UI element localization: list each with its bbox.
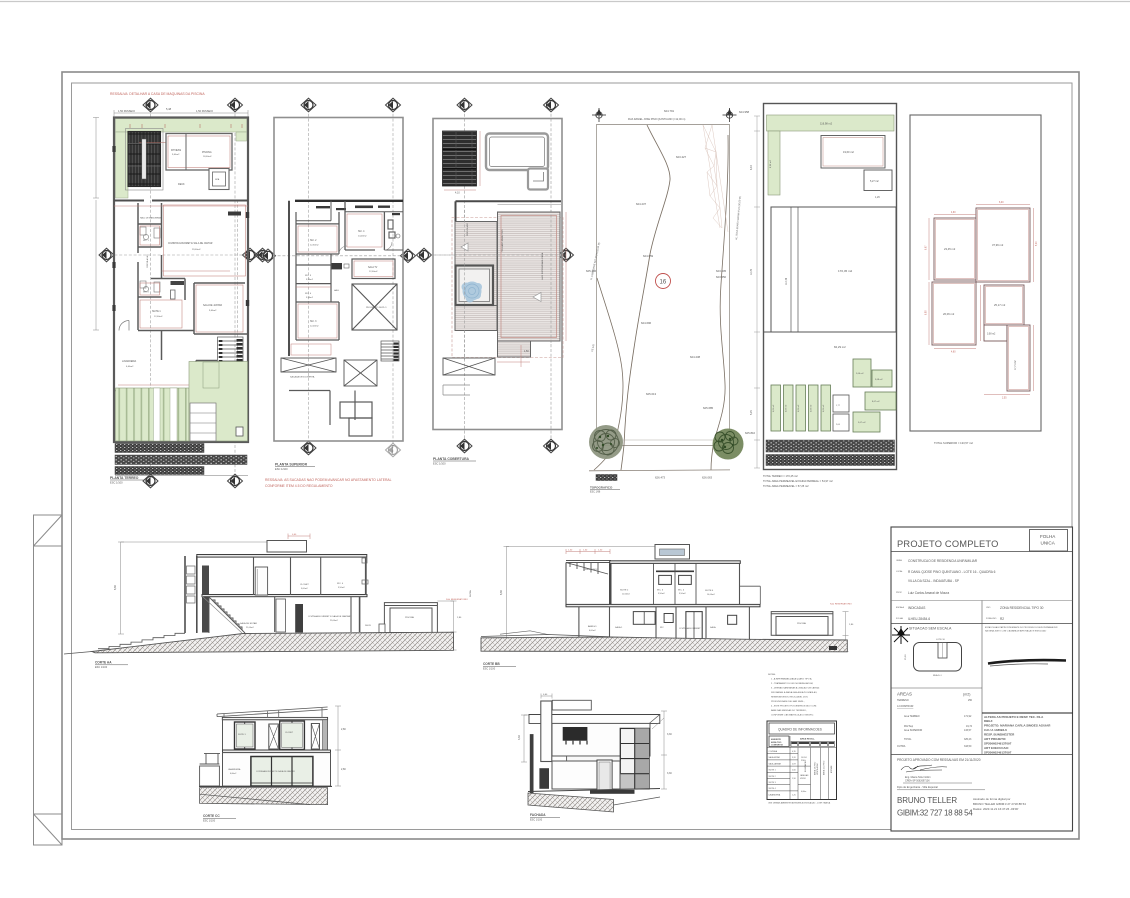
svg-text:CONFORME ITEM 4.5 DO REGULAMEN: CONFORME ITEM 4.5 DO REGULAMENTO [265,484,333,488]
svg-text:RESSALVA: DETALHAR A CASA DE M: RESSALVA: DETALHAR A CASA DE MAQUINAS DA… [110,92,205,96]
svg-text:CIRCULACAO: CIRCULACAO [146,254,149,268]
svg-text:COZINHA/GOURMET E SALA DE JANT: COZINHA/GOURMET E SALA DE JANTAR [308,615,351,618]
svg-text:6,00m2: 6,00m2 [230,773,236,775]
svg-text:625.013: 625.013 [646,392,657,396]
svg-text:4,10: 4,10 [455,192,460,195]
svg-text:COZINHA/GOURMET: COZINHA/GOURMET [679,627,701,630]
svg-text:5,25: 5,25 [750,410,753,415]
svg-text:TOTAL: TOTAL [904,738,912,741]
svg-text:3,50m2: 3,50m2 [338,587,346,589]
svg-text:PROJETO COMPLETO: PROJETO COMPLETO [897,539,999,549]
svg-text:6,40: 6,40 [750,165,753,170]
svg-text:ESC 1/100: ESC 1/100 [483,668,496,671]
svg-text:PISCINA: PISCINA [202,151,212,154]
svg-text:624.238: 624.238 [690,355,701,359]
svg-text:9,07 m2: 9,07 m2 [858,422,866,424]
svg-text:12,70: 12,70 [750,268,753,275]
svg-text:12,00m2: 12,00m2 [154,316,163,318]
svg-text:CORTE AA: CORTE AA [95,661,112,665]
svg-text:ESC 1/100: ESC 1/100 [530,819,543,822]
svg-text:ILHEU-28454-6: ILHEU-28454-6 [908,617,930,621]
svg-text:2 - TRATAMENTO E UM CHONERA VA: 2 - TRATAMENTO E UM CHONERA VACUM; [771,682,813,685]
svg-text:2,80: 2,80 [341,768,346,771]
svg-text:USO: USO [986,607,991,609]
svg-text:ESTA FOLHA E PARTE INTEGRANTE: ESTA FOLHA E PARTE INTEGRANTE DO PROCESS… [985,626,1058,629]
svg-text:4,69 m2: 4,69 m2 [798,404,800,412]
svg-text:SALA DE JANTAR: SALA DE JANTAR [203,304,222,307]
svg-text:1 - A IMPERMEABILIZADA QUANT.: 1 - A IMPERMEABILIZADA QUANT. TIPO A; [771,678,812,681]
svg-text:8,00: 8,00 [1036,241,1038,246]
svg-text:1/6 DO: 1/6 DO [801,757,808,759]
svg-text:37,96 m2: 37,96 m2 [992,243,1004,247]
svg-text:JANELAS: JANELAS [800,774,809,777]
svg-text:6,60: 6,60 [499,589,503,595]
svg-text:3,50m2: 3,50m2 [679,593,687,595]
svg-text:623.605: 623.605 [716,269,727,273]
svg-text:SP20660249137097: SP20660249137097 [984,751,1012,755]
svg-text:RESP. BUNDHESTER: RESP. BUNDHESTER [984,733,1015,737]
svg-text:INDICADAS: INDICADAS [908,606,925,610]
svg-text:OBS: DEMAIS AMBIENTES ATENDEM: OBS: DEMAIS AMBIENTES ATENDEM A LEGISLAC… [768,802,831,805]
svg-text:SALA 1: SALA 1 [615,626,623,629]
svg-text:12,00m2: 12,00m2 [369,271,378,273]
svg-text:ALTERA AS PROJETO E RESP. TEC.: ALTERA AS PROJETO E RESP. TEC. FILA [984,715,1044,719]
svg-text:3,50m2: 3,50m2 [658,593,666,595]
svg-text:625.685: 625.685 [703,406,714,410]
svg-text:GIBIM:32 727 18 88 54: GIBIM:32 727 18 88 54 [897,809,973,818]
svg-text:ZONA USO: ZONA USO [986,617,997,620]
svg-text:ART EXECUCAO:: ART EXECUCAO: [984,746,1009,750]
svg-text:2,60: 2,60 [792,770,796,772]
svg-text:Area TERREO: Area TERREO [904,715,920,718]
svg-text:19,74: 19,74 [966,725,973,728]
svg-text:FOLHA: FOLHA [896,617,903,620]
svg-text:12,00m2: 12,00m2 [310,326,319,328]
svg-text:ESC 1/100: ESC 1/100 [95,666,108,669]
svg-text:R DANIL QJOSE PINO QUINTUANO: R DANIL QJOSE PINO QUINTUANO - LOTE 16 -… [908,570,996,574]
svg-text:18,00m2: 18,00m2 [203,156,212,158]
svg-text:CORTE BB: CORTE BB [483,662,500,666]
svg-text:ESC 1/100: ESC 1/100 [433,462,446,466]
svg-text:25,00: 25,00 [905,654,907,660]
svg-text:6,00m2: 6,00m2 [126,366,134,368]
svg-text:ESC 1/100: ESC 1/100 [203,820,216,823]
svg-text:0,60m: 0,60m [801,791,807,793]
svg-text:SP20660249137097: SP20660249137097 [984,742,1012,746]
svg-text:WC. 3: WC. 3 [657,590,664,592]
svg-text:171,92: 171,92 [964,715,972,718]
svg-text:5,48: 5,48 [166,107,172,111]
svg-text:CLOSET: CLOSET [285,732,294,734]
svg-text:4,60: 4,60 [951,352,956,354]
svg-text:WC. 4: WC. 4 [305,293,312,295]
svg-text:N.A. RESERVATORIO: N.A. RESERVATORIO [830,603,852,606]
svg-text:1,50 PASSEIO: 1,50 PASSEIO [118,109,135,113]
svg-text:SALA JANTAR: SALA JANTAR [769,762,782,765]
svg-text:FITNESS: FITNESS [171,149,182,152]
svg-text:Area SUPERIOR: Area SUPERIOR [904,729,922,732]
svg-text:12,50m2: 12,50m2 [310,245,319,247]
svg-text:R2: R2 [1000,617,1004,621]
svg-text:ILUMINACAO: ILUMINACAO [804,760,807,772]
svg-text:SITUACAO SEM ESCALA: SITUACAO SEM ESCALA [909,627,952,631]
svg-text:LAVANDERIA: LAVANDERIA [122,360,137,363]
svg-text:COZINHA/GOURMET E SALA DE JANT: COZINHA/GOURMET E SALA DE JANTAR [168,242,213,245]
svg-text:6,00: 6,00 [999,202,1004,204]
svg-text:29,00m2: 29,00m2 [192,249,201,251]
svg-text:WC. 1: WC. 1 [143,240,150,242]
svg-text:SALA DE ESTAR: SALA DE ESTAR [240,622,257,625]
svg-text:COMPARTIM.: COMPARTIM. [771,744,784,747]
svg-text:TOTAL TERREO = 170,45 m2: TOTAL TERREO = 170,45 m2 [763,474,798,478]
svg-text:CONSTRUCAO DE RESIDENCIA UNIFA: CONSTRUCAO DE RESIDENCIA UNIFAMILIAR [908,559,978,563]
svg-text:DECK: DECK [365,625,372,627]
svg-text:14,00m2: 14,00m2 [358,236,367,238]
svg-text:LOTE 16: LOTE 16 [936,639,946,641]
svg-text:4,69 m2: 4,69 m2 [773,404,775,412]
svg-text:LAVANDERIA: LAVANDERIA [228,768,241,771]
svg-text:ESC 1/100: ESC 1/100 [110,481,123,485]
svg-text:WC. 2: WC. 2 [143,292,150,294]
svg-text:25,17 m2: 25,17 m2 [994,303,1006,307]
svg-text:250: 250 [968,699,973,702]
svg-text:BRUNO TELLER: BRUNO TELLER [897,796,957,805]
svg-text:4 - ESTE PROJETO FOI DESENVOLV: 4 - ESTE PROJETO FOI DESENVOLVIDO COM; [771,706,817,708]
svg-text:ART PROJETO:: ART PROJETO: [984,737,1006,741]
svg-text:TOTAL AREA PERMEAVEL = 57,25 m: TOTAL AREA PERMEAVEL = 57,25 m2 [763,484,809,488]
svg-text:PAV.Sup: PAV.Sup [904,725,914,728]
svg-text:Luiz Carlos Amaral de Moura: Luiz Carlos Amaral de Moura [908,591,949,595]
svg-text:PROFUNDIDADE DEL MAX NIVEL;: PROFUNDIDADE DEL MAX NIVEL; [771,700,805,703]
svg-text:624.696: 624.696 [641,321,652,325]
svg-text:WC. 4: WC. 4 [337,583,344,585]
svg-text:PROJETO APROVADO COM RESSALVAS: PROJETO APROVADO COM RESSALVAS EM 21/11/… [897,758,981,762]
svg-text:3,08 m2: 3,08 m2 [987,334,996,336]
svg-text:DBEJ:: DBEJ: [984,719,993,723]
svg-text:SUITE 2: SUITE 2 [620,590,629,592]
svg-text:CONFORME O AS MATRICULA DO IMO: CONFORME O AS MATRICULA DO IMOVEL; [771,714,814,717]
svg-text:DECK: DECK [178,183,185,186]
svg-text:AREA REGUL.: AREA REGUL. [800,738,815,741]
svg-text:626.473: 626.473 [655,476,666,480]
svg-text:1,26: 1,26 [875,196,880,199]
svg-text:624.659: 624.659 [643,254,654,258]
svg-text:ABRIGO: ABRIGO [588,625,597,628]
svg-text:626.063: 626.063 [702,476,713,480]
svg-text:21,00m2: 21,00m2 [246,627,255,629]
svg-text:16: 16 [660,280,667,286]
svg-text:8,07 m2: 8,07 m2 [872,401,880,403]
svg-text:3,30: 3,30 [667,772,672,775]
svg-text:PE DIREITO DUPLO: PE DIREITO DUPLO [366,307,387,309]
svg-text:9,00m2: 9,00m2 [209,310,217,312]
svg-text:PROP.: PROP. [896,592,902,594]
svg-text:624.958: 624.958 [739,110,750,114]
svg-text:625.436: 625.436 [586,269,597,273]
svg-text:6,00m2: 6,00m2 [589,630,597,632]
svg-text:WC. 3: WC. 3 [305,275,312,277]
svg-text:LAVANDERIA: LAVANDERIA [769,793,781,796]
svg-text:4,69 m2: 4,69 m2 [811,404,813,412]
svg-text:TOTAL AREA PERMEAVEL EXIGIDA P: TOTAL AREA PERMEAVEL EXIGIDA PERMEAL = 5… [763,479,833,483]
svg-text:2,55: 2,55 [1002,398,1007,400]
svg-text:AREAS: AREAS [897,692,912,697]
svg-text:3 - DRENAS SANITARIAS A LIGACA: 3 - DRENAS SANITARIAS A LIGACAO UM CARGA… [771,687,820,690]
svg-text:170,45 m2: 170,45 m2 [838,269,853,273]
svg-text:5,27 m2: 5,27 m2 [870,180,879,183]
svg-text:Dpto de Engenharia - Villa Esp: Dpto de Engenharia - Villa Especial [897,785,938,789]
svg-text:SALA TV: SALA TV [368,266,378,269]
svg-text:ESC 1/96: ESC 1/96 [590,491,601,494]
svg-text:SUITE 3: SUITE 3 [769,782,776,784]
svg-text:26,06 m2: 26,06 m2 [943,312,955,316]
svg-text:NOTAS:: NOTAS: [768,673,776,676]
svg-text:VIDRO: VIDRO [800,778,807,780]
svg-text:SUITE 2: SUITE 2 [769,776,776,778]
svg-text:TOPOGRAFICO: TOPOGRAFICO [590,486,613,490]
svg-text:CLOSET: CLOSET [300,584,309,586]
svg-text:9,00m2: 9,00m2 [301,588,309,590]
svg-text:SUITE 3: SUITE 3 [238,734,246,736]
svg-text:COZINHA/GOURMET E SALA DE JANT: COZINHA/GOURMET E SALA DE JANTAR [256,770,295,773]
svg-text:23,45 m2: 23,45 m2 [944,247,956,251]
svg-text:OUTRA: OUTRA [897,745,906,748]
svg-text:SUI. 2: SUI. 2 [310,240,317,242]
svg-text:114,78: 114,78 [785,277,788,285]
svg-text:625.810: 625.810 [745,431,756,435]
svg-text:3,08 m2: 3,08 m2 [875,379,883,381]
svg-text:2,87: 2,87 [792,763,796,765]
svg-text:SUI. 4: SUI. 4 [358,231,365,233]
svg-text:SUITE 1: SUITE 1 [152,311,161,313]
svg-text:ESC 1/100: ESC 1/100 [275,467,288,471]
svg-text:VENTILACAO: VENTILACAO [816,762,819,775]
svg-text:3,30: 3,30 [518,735,521,740]
svg-text:PLANTA COBERTURA: PLANTA COBERTURA [433,457,470,461]
svg-text:SALA ESTAR: SALA ESTAR [769,756,781,759]
svg-text:624.791: 624.791 [664,109,675,113]
svg-text:LAJE IMPERMEABILIZADA: LAJE IMPERMEABILIZADA [541,252,544,280]
svg-text:116,98 m2: 116,98 m2 [820,122,833,126]
svg-text:623.427: 623.427 [676,155,687,159]
svg-text:RESSALVA: AS SACADAS NAO PODEM: RESSALVA: AS SACADAS NAO PODEM AVANCAR N… [265,478,392,482]
svg-text:TERRENO: TERRENO [897,699,909,702]
svg-text:ZONA RESIDENCIAL TIPO 30: ZONA RESIDENCIAL TIPO 30 [1000,606,1044,610]
svg-text:ATENDE: ATENDE [830,765,833,773]
svg-text:623.550: 623.550 [716,275,727,279]
svg-text:FACHADA: FACHADA [530,813,546,817]
svg-text:SUITE 1: SUITE 1 [769,770,776,772]
svg-text:8,06 m2: 8,06 m2 [770,159,772,168]
svg-text:SUI. 3: SUI. 3 [310,321,317,323]
svg-text:QUADRO DE INFORMACOES: QUADRO DE INFORMACOES [778,728,822,732]
svg-text:3,50m2: 3,50m2 [306,297,314,299]
svg-text:UNICA: UNICA [1041,541,1056,546]
svg-text:SIFONADAS. A SAIDA GAS AGUA PL: SIFONADAS. A SAIDA GAS AGUA PLUVIAIS AO; [771,691,818,694]
svg-text:FOLHA: FOLHA [1040,534,1056,539]
svg-text:1,50 PASSEIO: 1,50 PASSEIO [196,109,213,113]
svg-text:133,57: 133,57 [964,729,972,732]
svg-text:17,71 m2: 17,71 m2 [1015,360,1017,370]
svg-text:1,90: 1,90 [792,778,796,780]
svg-text:5,06 m2: 5,06 m2 [856,373,864,375]
svg-text:PISCINA: PISCINA [797,622,806,625]
svg-text:PERGOLADO: PERGOLADO [584,568,598,571]
svg-text:29,00m2: 29,00m2 [330,620,339,622]
svg-text:DIVISA: DIVISA [469,590,472,597]
svg-text:SALA: SALA [710,626,716,629]
svg-text:Dados: 2023.11.21 16:47:26 -03: Dados: 2023.11.21 16:47:26 -03'00' [973,807,1019,811]
svg-text:3,20: 3,20 [792,757,796,759]
svg-text:ESCALA: ESCALA [896,606,905,609]
svg-text:CORTE CC: CORTE CC [203,814,220,818]
svg-text:4,69 m2: 4,69 m2 [786,404,788,412]
svg-text:SACADA DESCOBERTA: SACADA DESCOBERTA [290,376,315,379]
svg-text:VILLA DA SZAL - INDAIATUBA -: VILLA DA SZAL - INDAIATUBA - SP [908,579,959,583]
svg-text:OBRA: OBRA [896,559,902,562]
svg-text:1,25: 1,25 [792,794,796,796]
svg-text:N.A. RESERVATORIO: N.A. RESERVATORIO [446,598,468,601]
svg-text:4,35: 4,35 [792,751,796,753]
svg-text:COZINHA: COZINHA [769,750,778,753]
svg-text:3,50m2: 3,50m2 [306,279,314,281]
svg-text:CAU A 148692-6: CAU A 148692-6 [984,728,1007,732]
svg-text:A CONSTRUIR: A CONSTRUIR [897,705,914,708]
svg-text:4,60: 4,60 [951,212,956,214]
svg-text:CREA-SP 506269713K: CREA-SP 506269713K [905,780,930,783]
svg-text:1,50: 1,50 [524,350,529,353]
svg-text:AMBIENTE: AMBIENTE [771,738,782,741]
svg-text:PLANTA TERREO: PLANTA TERREO [110,476,139,480]
svg-text:14,00m2: 14,00m2 [707,594,716,596]
svg-text:2,80: 2,80 [341,728,346,731]
svg-text:6,88: 6,88 [926,310,928,315]
svg-text:AREA PISO: AREA PISO [771,741,782,744]
svg-text:PLANTA SUPERIOR: PLANTA SUPERIOR [275,463,308,467]
svg-text:RUA DANIEL JOSE PINO QUINTUANO: RUA DANIEL JOSE PINO QUINTUANO (=12,00 m… [628,118,686,121]
svg-text:LOCAL: LOCAL [896,570,903,573]
svg-text:TELHADO EMBUTIDO: TELHADO EMBUTIDO [501,229,504,252]
svg-text:4,69 m2: 4,69 m2 [823,404,825,412]
svg-text:BRUNO TELLER GIBIM:3 27 2718 8: BRUNO TELLER GIBIM:3 27 2718 88 54 [973,802,1026,806]
svg-text:12,50m2: 12,50m2 [622,594,631,596]
svg-text:624.237: 624.237 [636,202,647,206]
svg-text:NA OBRA JUNTO COM O ALVARA DE: NA OBRA JUNTO COM O ALVARA DE APROVACAO … [985,630,1047,633]
svg-text:TOTAL SUPERIOR = 133,57 m2: TOTAL SUPERIOR = 133,57 m2 [934,441,973,445]
svg-text:SUITE 4: SUITE 4 [769,788,776,790]
svg-text:WC. 4: WC. 4 [678,590,685,592]
svg-text:RUA D.J.: RUA D.J. [933,674,942,677]
svg-text:Assinado de forma digital por: Assinado de forma digital por [973,797,1010,801]
svg-text:325,23: 325,23 [964,738,972,741]
svg-text:SUITE 4: SUITE 4 [705,590,714,592]
svg-text:6,67: 6,67 [926,245,928,250]
svg-text:84,29 m2: 84,29 m2 [834,345,846,349]
svg-text:WC: WC [660,627,664,629]
svg-text:6,60: 6,60 [113,584,117,590]
svg-text:AREA 1/12 PISO: AREA 1/12 PISO [823,760,826,775]
svg-text:19,60 m2: 19,60 m2 [843,150,854,154]
svg-text:9,00m2: 9,00m2 [172,154,180,156]
svg-text:SPA: SPA [215,178,220,181]
svg-text:(m2): (m2) [963,693,970,697]
svg-text:HALL DE MANOBRAS: HALL DE MANOBRAS [140,217,162,220]
svg-text:PISCINA: PISCINA [405,616,414,619]
svg-text:PERGOLADO: PERGOLADO [466,222,469,236]
svg-text:HALL: HALL [334,289,340,292]
svg-text:PROJETO: MARIANA CARLA SIMOES: PROJETO: MARIANA CARLA SIMOES AGUIAR [984,724,1051,728]
svg-text:BASE NAS MEDIDAS DO TERRENO;: BASE NAS MEDIDAS DO TERRENO; [771,709,807,712]
svg-text:3,30: 3,30 [667,733,672,736]
svg-text:343,50: 343,50 [964,745,972,748]
svg-text:RESERVATORIOS. RECICLAVEL DOS;: RESERVATORIOS. RECICLAVEL DOS; [771,696,808,699]
